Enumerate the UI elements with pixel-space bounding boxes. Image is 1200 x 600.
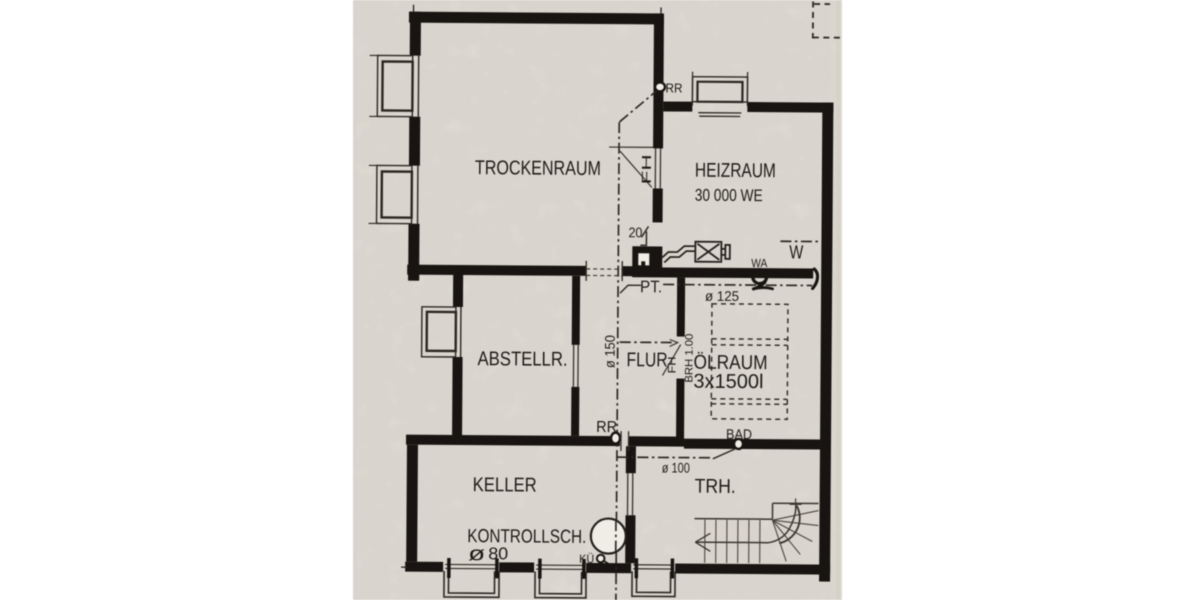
- svg-text:WA: WA: [751, 256, 767, 270]
- svg-text:KÜ: KÜ: [579, 552, 594, 566]
- svg-text:3x1500l: 3x1500l: [693, 371, 763, 393]
- svg-text:ABSTELLR.: ABSTELLR.: [478, 348, 568, 371]
- svg-text:W: W: [789, 242, 803, 263]
- svg-text:TRH.: TRH.: [695, 476, 736, 498]
- svg-text:BAD: BAD: [726, 426, 752, 442]
- svg-text:FH: FH: [666, 356, 678, 373]
- svg-text:RR: RR: [665, 80, 682, 95]
- svg-text:BRH 1.00: BRH 1.00: [683, 334, 695, 383]
- svg-text:ø 125: ø 125: [705, 288, 739, 304]
- svg-text:ø 100: ø 100: [662, 459, 690, 475]
- svg-text:RR: RR: [596, 419, 617, 436]
- svg-text:PT.: PT.: [640, 277, 662, 296]
- svg-text:KELLER: KELLER: [473, 474, 537, 496]
- svg-text:FH: FH: [639, 154, 654, 184]
- svg-text:ø 150: ø 150: [602, 335, 618, 368]
- svg-text:20: 20: [628, 224, 642, 240]
- svg-text:30 000 WE: 30 000 WE: [695, 186, 763, 205]
- svg-text:FLUR: FLUR: [627, 349, 668, 371]
- svg-text:80: 80: [488, 544, 508, 563]
- svg-text:TROCKENRAUM: TROCKENRAUM: [475, 157, 601, 180]
- svg-text:HEIZRAUM: HEIZRAUM: [695, 160, 776, 183]
- svg-text:ø: ø: [468, 543, 485, 565]
